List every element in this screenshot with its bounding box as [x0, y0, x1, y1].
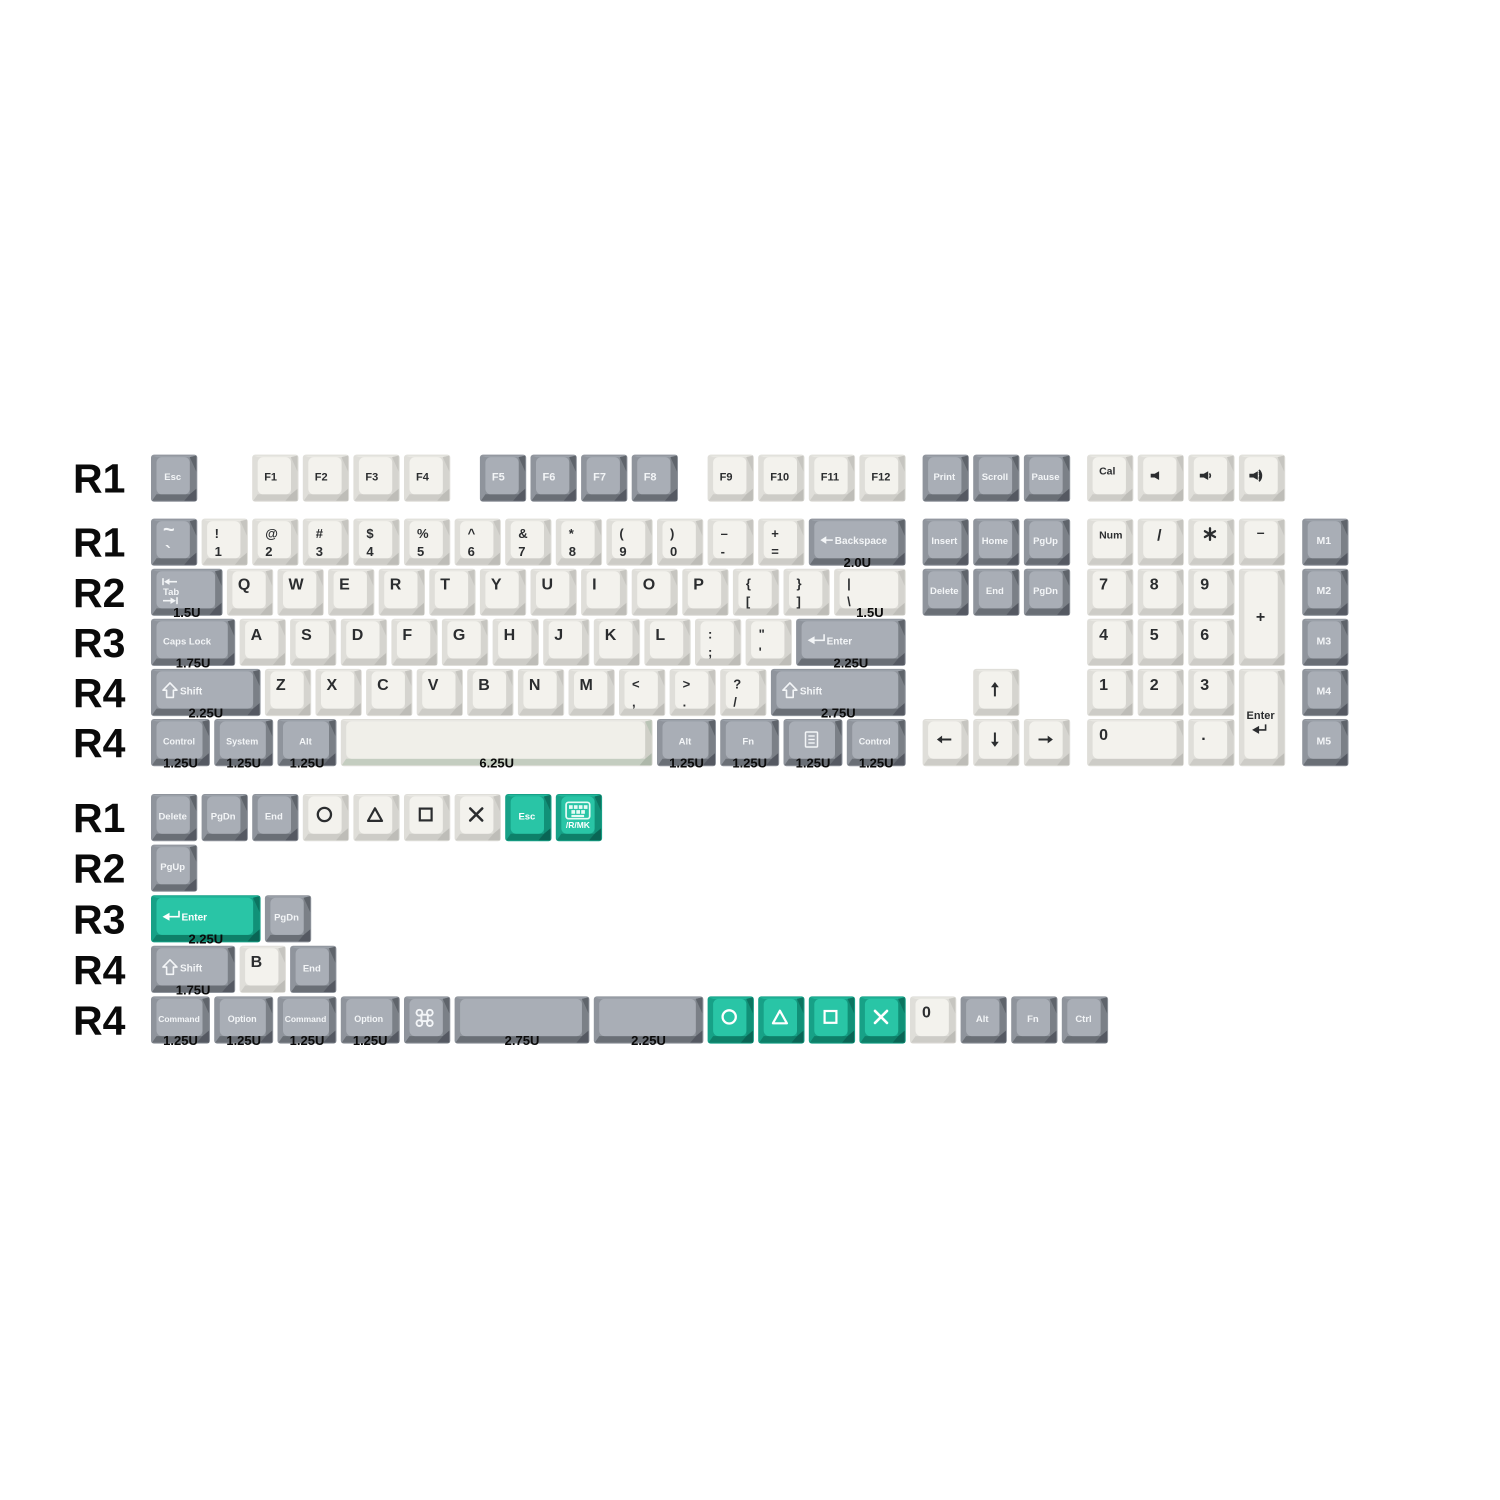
svg-text:.: .: [1201, 727, 1205, 744]
svg-text:H: H: [504, 627, 516, 644]
svg-text:Enter: Enter: [827, 636, 853, 647]
svg-text:3: 3: [316, 544, 323, 559]
svg-text:Y: Y: [491, 577, 502, 594]
svg-text:N: N: [529, 677, 541, 694]
svg-text:1: 1: [215, 544, 222, 559]
svg-text:Alt: Alt: [679, 737, 693, 748]
svg-text:Backspace: Backspace: [835, 536, 888, 547]
svg-text:E: E: [339, 577, 350, 594]
svg-text:F: F: [402, 627, 412, 644]
svg-text:Shift: Shift: [800, 686, 823, 697]
svg-text:B: B: [478, 677, 490, 694]
svg-text:Ctrl: Ctrl: [1075, 1014, 1091, 1025]
svg-text:1: 1: [1099, 677, 1108, 694]
svg-text:Command: Command: [158, 1014, 200, 1024]
svg-text:1.25U: 1.25U: [732, 756, 767, 771]
svg-text:S: S: [301, 627, 312, 644]
svg-text:Shift: Shift: [180, 963, 203, 974]
svg-text:#: #: [316, 526, 324, 541]
svg-text:D: D: [352, 627, 364, 644]
svg-text:J: J: [554, 627, 563, 644]
svg-text:2.75U: 2.75U: [821, 705, 856, 720]
svg-text:': ': [759, 644, 762, 659]
svg-text:G: G: [453, 627, 465, 644]
svg-text:V: V: [428, 677, 439, 694]
svg-text:F8: F8: [644, 472, 657, 484]
svg-text:.: .: [683, 694, 687, 709]
svg-text:–: –: [1257, 524, 1265, 540]
svg-text:2.25U: 2.25U: [834, 655, 869, 670]
svg-text:%: %: [417, 526, 429, 541]
svg-text:?: ?: [733, 676, 741, 691]
svg-text:1.5U: 1.5U: [173, 605, 200, 620]
svg-text:F2: F2: [315, 472, 328, 484]
svg-text:/R/MK: /R/MK: [566, 820, 591, 830]
svg-text:|: |: [847, 576, 851, 591]
svg-text:PgDn: PgDn: [211, 812, 236, 823]
svg-text:}: }: [797, 576, 802, 591]
svg-text:R2: R2: [73, 570, 125, 616]
svg-text:6.25U: 6.25U: [479, 756, 514, 771]
svg-text:0: 0: [922, 1004, 931, 1021]
svg-text:7: 7: [518, 544, 525, 559]
svg-text:7: 7: [1099, 577, 1108, 594]
svg-text:\: \: [847, 594, 851, 609]
svg-text:Alt: Alt: [976, 1014, 990, 1025]
svg-text:1.25U: 1.25U: [796, 756, 831, 771]
svg-text:End: End: [986, 586, 1004, 597]
svg-text:Cal: Cal: [1099, 466, 1115, 478]
svg-text:F3: F3: [365, 472, 378, 484]
svg-text:(: (: [619, 526, 624, 541]
svg-text:+: +: [1256, 609, 1265, 626]
svg-text:Pause: Pause: [1032, 472, 1060, 483]
svg-text:1.25U: 1.25U: [163, 756, 198, 771]
svg-text:{: {: [746, 576, 751, 591]
svg-text:End: End: [303, 963, 321, 974]
svg-text:1.25U: 1.25U: [226, 756, 261, 771]
svg-text:R3: R3: [73, 896, 125, 942]
svg-text:2: 2: [265, 544, 272, 559]
svg-text:1.25U: 1.25U: [353, 1033, 388, 1048]
svg-text:+: +: [771, 526, 779, 541]
svg-text:]: ]: [797, 594, 801, 609]
svg-text:2.75U: 2.75U: [505, 1033, 540, 1048]
svg-text:F7: F7: [593, 472, 606, 484]
svg-text:>: >: [683, 676, 691, 691]
svg-text:2.25U: 2.25U: [188, 705, 223, 720]
svg-text:1.5U: 1.5U: [856, 605, 883, 620]
svg-text:1.75U: 1.75U: [176, 982, 211, 997]
svg-text:F11: F11: [821, 472, 839, 484]
svg-text:Scroll: Scroll: [982, 472, 1008, 483]
svg-text:R1: R1: [73, 520, 125, 566]
svg-text:6: 6: [468, 544, 475, 559]
svg-text:1.25U: 1.25U: [859, 756, 894, 771]
svg-text:Insert: Insert: [931, 536, 958, 547]
svg-text:4: 4: [366, 544, 374, 559]
svg-text:;: ;: [708, 644, 712, 659]
svg-text:Print: Print: [933, 472, 955, 483]
svg-text:PgDn: PgDn: [274, 913, 299, 924]
svg-text:/: /: [733, 694, 737, 709]
svg-text:Control: Control: [859, 737, 891, 747]
svg-text:[: [: [746, 594, 751, 609]
svg-text:L: L: [655, 627, 665, 644]
svg-text:I: I: [592, 577, 596, 594]
svg-text:PgDn: PgDn: [1033, 586, 1058, 597]
svg-text:Alt: Alt: [299, 737, 313, 748]
svg-text:1.25U: 1.25U: [163, 1033, 198, 1048]
svg-text:P: P: [693, 577, 704, 594]
svg-text:": ": [759, 626, 765, 641]
svg-text:9: 9: [1200, 577, 1209, 594]
svg-text:Fn: Fn: [742, 737, 754, 748]
svg-text:End: End: [265, 812, 283, 823]
svg-text:1.75U: 1.75U: [176, 655, 211, 670]
svg-text:-: -: [721, 544, 725, 559]
svg-text:^: ^: [468, 526, 476, 541]
svg-text:F1: F1: [264, 472, 277, 484]
svg-text:Shift: Shift: [180, 686, 203, 697]
svg-text:System: System: [226, 737, 258, 747]
svg-text:M4: M4: [1317, 685, 1332, 697]
svg-text:T: T: [440, 577, 450, 594]
svg-text:R1: R1: [73, 795, 125, 841]
svg-text:): ): [670, 526, 674, 541]
svg-text:M5: M5: [1317, 736, 1332, 748]
svg-text:R4: R4: [73, 670, 126, 716]
svg-text:0: 0: [1099, 727, 1108, 744]
svg-text:Num: Num: [1099, 530, 1122, 542]
svg-text:PgUp: PgUp: [160, 862, 185, 873]
svg-text:F10: F10: [770, 472, 789, 484]
svg-text:1.25U: 1.25U: [669, 756, 704, 771]
svg-text:Esc: Esc: [164, 472, 181, 483]
svg-text:M: M: [580, 677, 593, 694]
svg-text:1.25U: 1.25U: [290, 756, 325, 771]
svg-text:M3: M3: [1317, 635, 1332, 647]
svg-text:F12: F12: [871, 472, 890, 484]
svg-text:Delete: Delete: [930, 586, 959, 597]
svg-text:M2: M2: [1317, 585, 1332, 597]
svg-text:Caps Lock: Caps Lock: [163, 636, 212, 647]
svg-text:1.25U: 1.25U: [290, 1033, 325, 1048]
svg-text:Option: Option: [354, 1014, 383, 1024]
svg-text:Control: Control: [163, 737, 195, 747]
svg-text:B: B: [251, 954, 263, 971]
svg-text:F6: F6: [543, 472, 556, 484]
svg-text:2.25U: 2.25U: [631, 1033, 666, 1048]
svg-text:0: 0: [670, 544, 677, 559]
svg-text:<: <: [632, 676, 640, 691]
svg-text:W: W: [289, 577, 305, 594]
svg-text:U: U: [542, 577, 554, 594]
svg-text:F5: F5: [492, 472, 505, 484]
svg-text:R4: R4: [73, 947, 126, 993]
svg-text:Tab: Tab: [163, 587, 179, 598]
svg-text:/: /: [1157, 528, 1162, 545]
svg-text:R3: R3: [73, 620, 125, 666]
svg-text:3: 3: [1200, 677, 1209, 694]
svg-text:&: &: [518, 526, 527, 541]
svg-text:R1: R1: [73, 456, 125, 502]
svg-text::: :: [708, 626, 712, 641]
svg-text:2.25U: 2.25U: [188, 932, 223, 947]
svg-text:Enter: Enter: [182, 913, 208, 924]
svg-text:6: 6: [1200, 627, 1209, 644]
svg-text:R4: R4: [73, 998, 126, 1044]
svg-text:,: ,: [632, 694, 636, 709]
svg-text:F9: F9: [720, 472, 733, 484]
svg-text:4: 4: [1099, 627, 1108, 644]
svg-text:~: ~: [163, 519, 175, 541]
svg-text:Z: Z: [276, 677, 286, 694]
svg-text:5: 5: [1150, 627, 1159, 644]
svg-text:$: $: [366, 526, 374, 541]
svg-text:Delete: Delete: [158, 812, 187, 823]
svg-text:5: 5: [417, 544, 424, 559]
svg-text:9: 9: [619, 544, 626, 559]
svg-text:Home: Home: [982, 536, 1008, 547]
svg-text:`: `: [165, 543, 171, 563]
svg-text:!: !: [215, 526, 219, 541]
svg-text:X: X: [327, 677, 338, 694]
svg-text:Q: Q: [238, 577, 250, 594]
svg-text:–: –: [721, 526, 728, 541]
svg-text:C: C: [377, 677, 389, 694]
svg-text:PgUp: PgUp: [1033, 536, 1058, 547]
svg-text:Esc: Esc: [518, 812, 535, 823]
svg-text:M1: M1: [1317, 535, 1332, 547]
svg-text:O: O: [643, 577, 655, 594]
svg-text:8: 8: [569, 544, 576, 559]
svg-text:2.0U: 2.0U: [844, 555, 871, 570]
svg-text:R4: R4: [73, 720, 126, 766]
svg-text:=: =: [771, 544, 779, 559]
svg-text:R: R: [390, 577, 402, 594]
svg-text:Fn: Fn: [1027, 1014, 1039, 1025]
svg-text:Command: Command: [285, 1014, 327, 1024]
svg-text:2: 2: [1150, 677, 1159, 694]
svg-text:R2: R2: [73, 846, 125, 892]
svg-text:F4: F4: [416, 472, 430, 484]
svg-text:8: 8: [1150, 577, 1159, 594]
svg-text:Enter: Enter: [1247, 710, 1276, 722]
svg-text:1.25U: 1.25U: [226, 1033, 261, 1048]
svg-text:Option: Option: [228, 1014, 257, 1024]
svg-text:K: K: [605, 627, 617, 644]
svg-text:@: @: [265, 526, 278, 541]
svg-text:A: A: [251, 627, 263, 644]
